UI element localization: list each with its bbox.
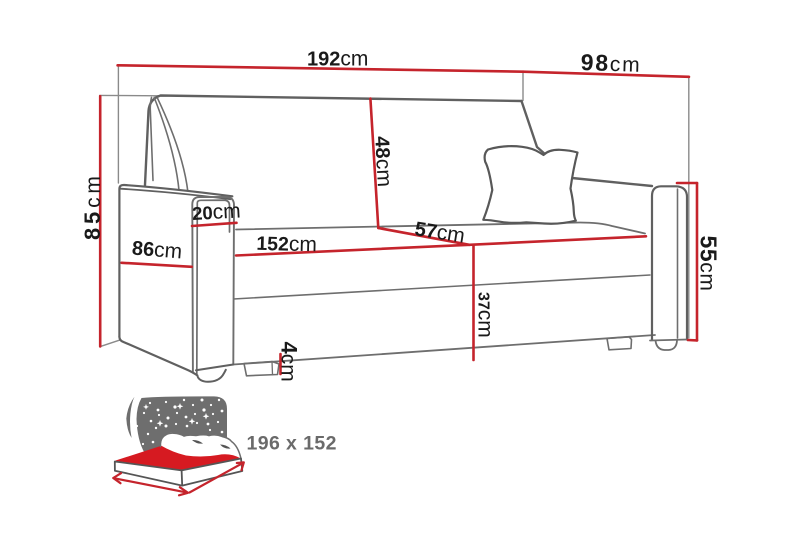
svg-text:48cm: 48cm: [370, 136, 396, 188]
svg-text:37cm: 37cm: [473, 292, 496, 338]
svg-text:192cm: 192cm: [307, 48, 368, 71]
svg-text:57cm: 57cm: [413, 217, 466, 248]
svg-text:55cm: 55cm: [695, 236, 721, 292]
svg-text:85cm: 85cm: [80, 172, 105, 240]
svg-text:20cm: 20cm: [192, 199, 242, 225]
svg-text:152cm: 152cm: [256, 232, 317, 257]
svg-text:86cm: 86cm: [131, 237, 183, 264]
svg-text:4cm: 4cm: [277, 342, 302, 382]
svg-text:98cm: 98cm: [580, 49, 642, 77]
svg-text:196 x 152: 196 x 152: [247, 433, 337, 455]
